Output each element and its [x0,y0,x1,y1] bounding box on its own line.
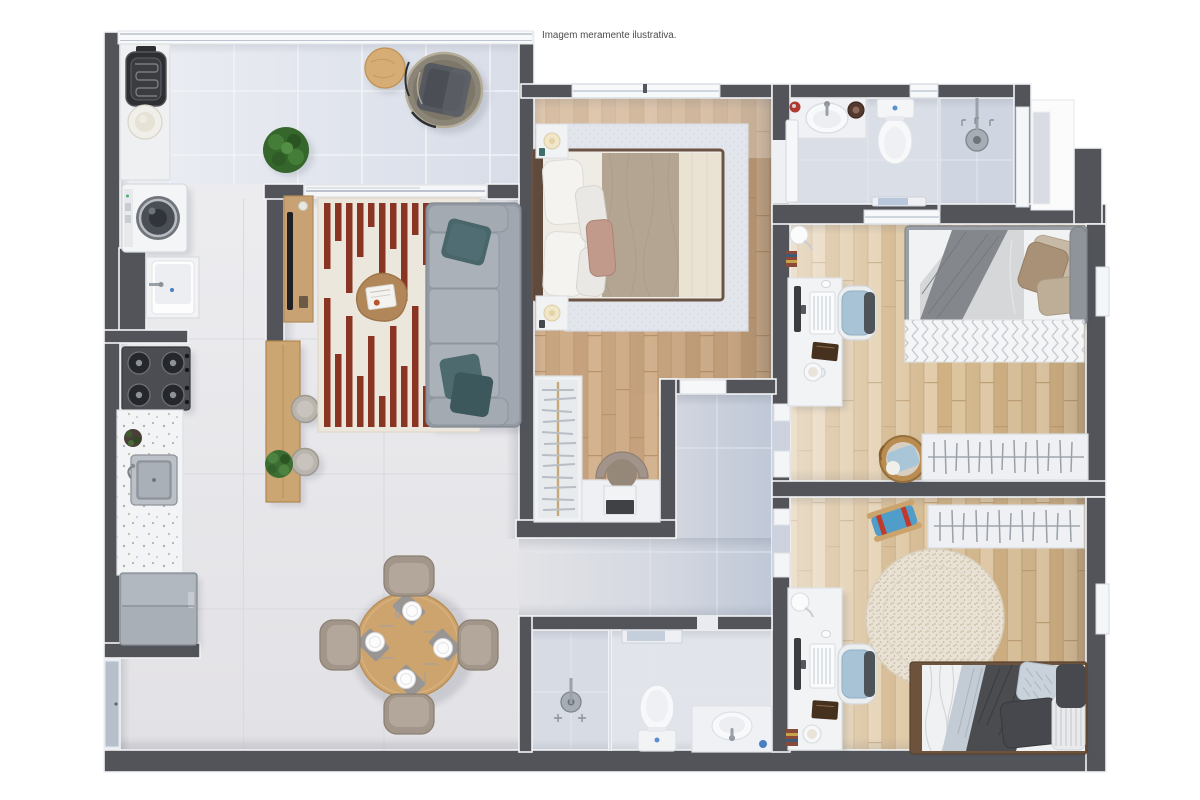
svg-text:Imagem meramente ilustrativa.: Imagem meramente ilustrativa. [542,30,676,41]
